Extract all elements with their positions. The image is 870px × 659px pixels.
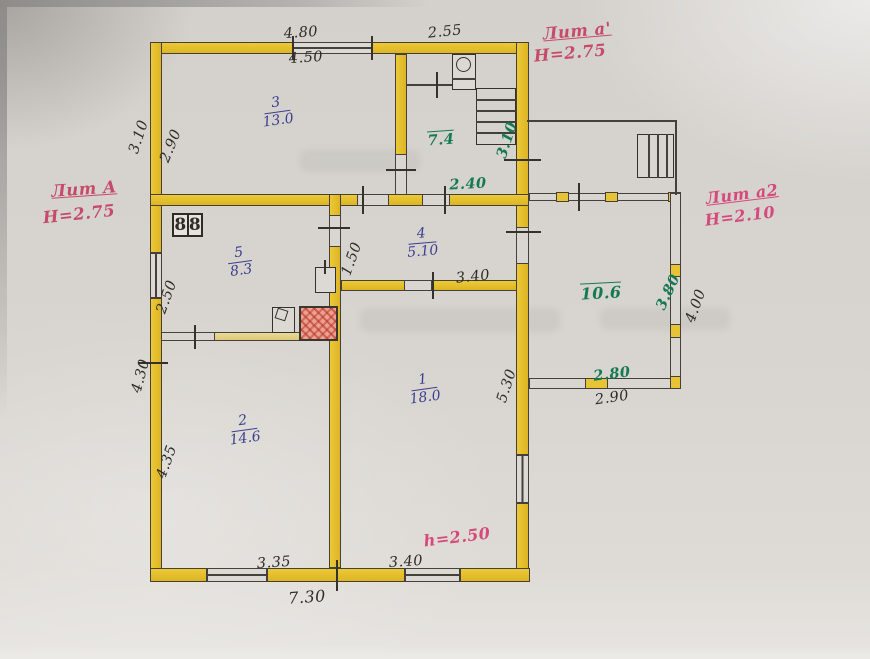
- wall-r2-r1: [329, 246, 341, 568]
- room5-label: 5 8.3: [226, 244, 254, 280]
- dim-top-inner: 4.50: [288, 49, 323, 67]
- wall-left-upper: [150, 42, 162, 253]
- door-annex: [395, 155, 407, 194]
- heater-flue-tick: [324, 260, 326, 274]
- tick: [362, 186, 364, 214]
- dim-top-outer: 4.80: [283, 24, 318, 42]
- room3-area: 13.0: [262, 112, 295, 131]
- closet-shelf: [452, 78, 476, 80]
- room2-label: 2 14.6: [226, 412, 261, 449]
- tick: [444, 186, 446, 214]
- litera-main-label: Лит А: [51, 177, 118, 201]
- veranda-pier: [605, 192, 618, 202]
- boiler-circle: [456, 57, 471, 72]
- gas-stove-left-burner: 8: [174, 215, 189, 235]
- dim-room4-height: 1.50: [339, 240, 366, 278]
- photo-left-edge-shadow: [0, 0, 7, 420]
- dim-hall: 2.40: [449, 175, 487, 194]
- porch-line-top: [527, 120, 677, 122]
- tick: [578, 183, 580, 211]
- porch-line-side: [675, 120, 677, 195]
- tick: [336, 560, 338, 591]
- veranda-pier-corner: [670, 376, 681, 389]
- dim-bottom-room2: 3.35: [256, 554, 291, 572]
- tick: [371, 36, 373, 60]
- annex-area-label: 7.4: [427, 131, 455, 150]
- litera-main-height: Н=2.75: [42, 201, 116, 227]
- tick: [194, 325, 196, 349]
- gas-stove-right-burner: 8: [189, 215, 202, 235]
- door-room2: [162, 332, 214, 341]
- veranda-pier: [670, 324, 681, 338]
- stair-tread: [476, 110, 516, 112]
- dim-veranda-outer-w: 2.90: [594, 388, 630, 409]
- room3-label: 3 13.0: [259, 94, 294, 131]
- annex-partition: [407, 84, 452, 86]
- wall-top-left-segment: [150, 42, 293, 54]
- room1-area: 18.0: [409, 389, 442, 408]
- photo-top-edge-shadow: [0, 0, 430, 7]
- steps-tread: [657, 134, 659, 178]
- wall-bottom-3: [460, 568, 530, 582]
- tick: [432, 272, 434, 299]
- wall-room3-annex: [395, 54, 407, 155]
- wall-bottom-1: [150, 568, 207, 582]
- door-to-veranda: [516, 228, 529, 263]
- annex-door-tick: [436, 72, 438, 98]
- dim-bottom-room1: 3.40: [388, 553, 423, 571]
- wall-left-lower: [150, 298, 162, 575]
- door-room5: [329, 216, 341, 246]
- dim-left3-outer: 3.10: [126, 118, 152, 156]
- wall-top-right-segment: [372, 42, 529, 54]
- stair-tread: [476, 99, 516, 101]
- veranda-area-label: 10.6: [580, 282, 622, 303]
- veranda-pier: [556, 192, 569, 202]
- window-bottom-right: [405, 568, 460, 582]
- wall-r4-bottom-1: [341, 280, 405, 291]
- wall-mid-3: [449, 194, 529, 206]
- brick-stove: [299, 306, 338, 341]
- window-right: [516, 455, 529, 503]
- paper-bottom-band: [0, 645, 870, 659]
- floor-plan-photo: 88 4.80 4.50 2.55 3.10 2.90 2.50 1.50 3.…: [0, 0, 870, 659]
- tick: [506, 231, 541, 233]
- room2-area: 14.6: [229, 430, 262, 449]
- wall-right-middle: [516, 263, 529, 455]
- steps-tread: [648, 134, 650, 178]
- wall-r5-right-upper: [329, 194, 341, 216]
- room1-label: 1 18.0: [406, 371, 441, 408]
- dim-bottom-total: 7.30: [288, 586, 327, 608]
- wall-mid-2: [388, 194, 423, 206]
- tick: [318, 227, 350, 229]
- gas-stove-symbol: 88: [172, 213, 203, 237]
- steps-tread: [666, 134, 668, 178]
- room4-area: 5.10: [407, 243, 439, 260]
- litera-annex-height: Н=2.75: [533, 40, 607, 65]
- room4-label: 4 5.10: [405, 225, 439, 260]
- watermark-blob: [360, 308, 560, 332]
- room4-number: 4: [405, 225, 437, 242]
- room5-area: 8.3: [228, 262, 254, 280]
- outside-steps: [637, 134, 674, 178]
- wall-mid-1: [150, 194, 358, 206]
- ceiling-height-note: h=2.50: [423, 523, 492, 550]
- wall-right-lower: [516, 503, 529, 575]
- door-room1: [405, 280, 431, 291]
- dim-annex-top: 2.55: [427, 22, 463, 41]
- tick: [386, 169, 416, 171]
